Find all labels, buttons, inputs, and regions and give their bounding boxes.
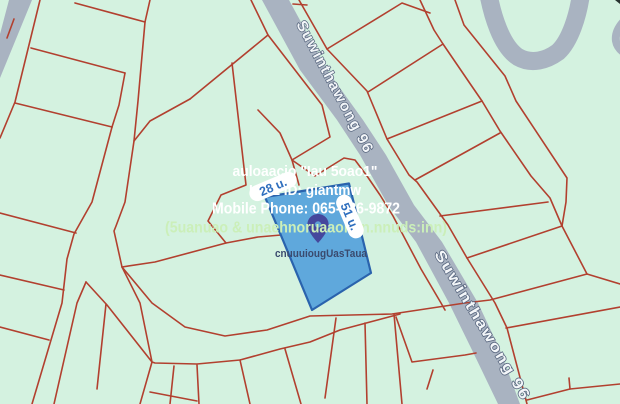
svg-text:(5uanuao & unaehnoruaaonun.nnu: (5uanuao & unaehnoruaaonun.nnuds:inn) <box>165 220 447 237</box>
svg-text:auloaacio "Iau 5oao1": auloaacio "Iau 5oao1" <box>233 163 378 180</box>
svg-text:cnuuuiougUasTaua: cnuuuiougUasTaua <box>275 248 368 260</box>
svg-text:Mobile Phone: 065-986-9872: Mobile Phone: 065-986-9872 <box>212 201 400 218</box>
